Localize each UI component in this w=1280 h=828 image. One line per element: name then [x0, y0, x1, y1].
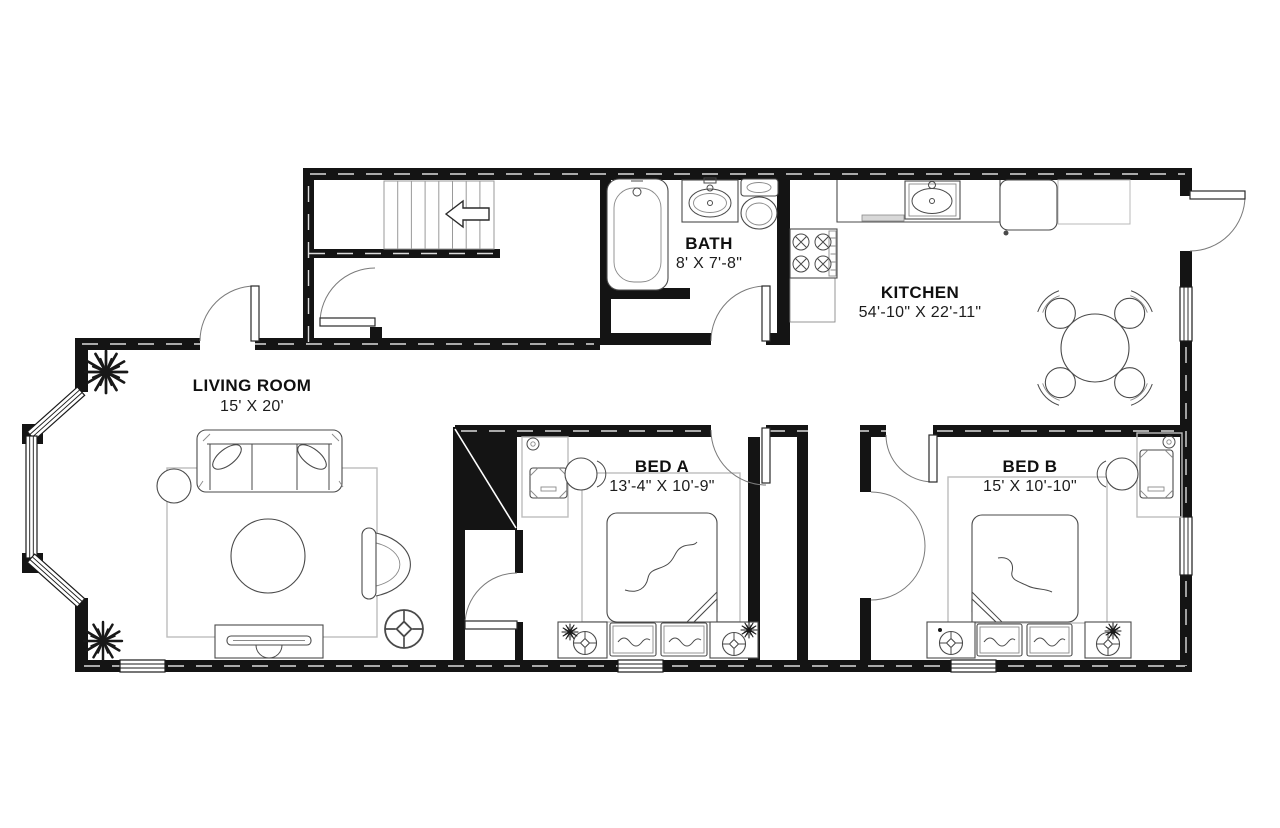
plant-icon — [85, 351, 127, 393]
corner-lamp-table-icon — [385, 610, 423, 648]
tv-console-icon — [215, 625, 323, 658]
living-room-label: LIVING ROOM — [193, 376, 312, 395]
kitchen-sink-icon — [905, 181, 960, 219]
double-bed-icon — [972, 515, 1078, 656]
dining-table-set — [1035, 288, 1155, 408]
sofa-icon — [197, 430, 343, 492]
bay-window — [26, 387, 85, 607]
vanity-chair-icon — [565, 458, 597, 490]
bed-a-dims: 13'-4" X 10'-9" — [609, 478, 715, 495]
bed-a-window — [618, 660, 663, 672]
entry-door — [1190, 191, 1245, 251]
bed-b-bifold-closet-doors — [871, 492, 925, 600]
kitchen-label: KITCHEN — [881, 283, 959, 302]
staircase — [384, 181, 494, 249]
stove-icon — [790, 229, 837, 278]
bath-door — [711, 286, 770, 341]
wall-light-icon — [1163, 436, 1175, 448]
nightstand-icon — [558, 622, 607, 658]
dresser-icon — [1140, 450, 1173, 498]
stair-void — [453, 427, 517, 530]
hall-closet-door — [320, 268, 375, 326]
ottoman-icon — [231, 519, 305, 593]
kitchen-dims: 54'-10" X 22'-11" — [859, 304, 982, 321]
bath-sink-icon — [682, 178, 738, 222]
dresser-icon — [530, 468, 567, 498]
fridge-icon — [1000, 180, 1057, 236]
plant-icon — [84, 622, 122, 660]
bed-a-closet-door — [465, 573, 517, 629]
vanity-lamp-icon — [1097, 461, 1106, 487]
wall-light-icon — [527, 438, 539, 450]
vanity-chair-icon — [1106, 458, 1138, 490]
nightstand-icon — [927, 622, 975, 658]
bath-dims: 8' X 7'-8" — [676, 255, 742, 272]
bed-a-label: BED A — [635, 457, 689, 476]
nightstand-icon — [710, 622, 758, 658]
side-table-icon — [157, 469, 191, 503]
bed-b-door — [886, 435, 937, 482]
nightstand-icon — [1085, 622, 1131, 658]
bath-label: BATH — [685, 234, 733, 253]
floor-plan-page: LIVING ROOM 15' X 20' BATH 8' X 7'-8" KI… — [0, 0, 1280, 828]
bed-b-label: BED B — [1003, 457, 1058, 476]
bed-b-window — [951, 660, 996, 672]
dining-table-icon — [1061, 314, 1129, 382]
kitchen-window — [1180, 287, 1192, 341]
bed-b-side-window — [1180, 517, 1192, 575]
double-bed-icon — [607, 513, 717, 656]
toilet-icon — [741, 179, 778, 229]
vanity-lamp-icon — [597, 461, 606, 487]
living-room-dims: 15' X 20' — [220, 398, 284, 415]
armchair-icon — [362, 528, 410, 599]
living-room-window — [120, 660, 165, 672]
floor-plan-canvas: LIVING ROOM 15' X 20' BATH 8' X 7'-8" KI… — [0, 0, 1280, 828]
bed-b-dims: 15' X 10'-10" — [983, 478, 1077, 495]
bathtub-icon — [607, 179, 668, 290]
living-room-door — [200, 286, 259, 341]
